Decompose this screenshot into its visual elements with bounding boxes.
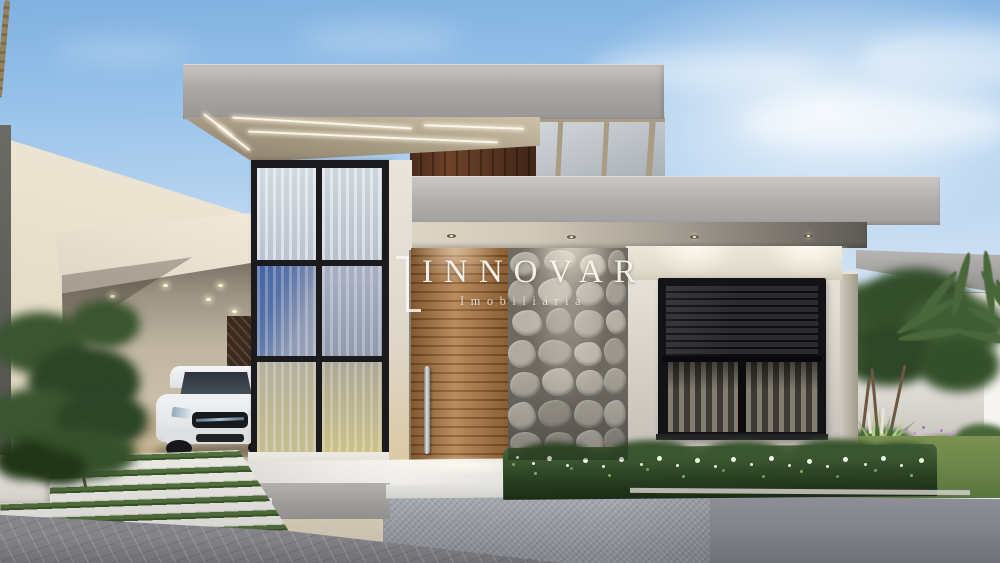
hedge-cluster [870,442,930,462]
stone-feature-wall [508,248,628,460]
door-handle [424,366,430,454]
tree-foliage [30,450,86,484]
render-canvas: INNOVAR Imobiliária [0,0,1000,563]
watermark-logo-mark [406,256,409,312]
hedge-cluster [705,441,781,463]
hedge-speckles [512,463,515,466]
hedge-cluster [795,439,879,463]
watermark-logo-mark [406,309,421,312]
tree-foliage [70,300,140,348]
stone-wall-light [508,248,628,460]
